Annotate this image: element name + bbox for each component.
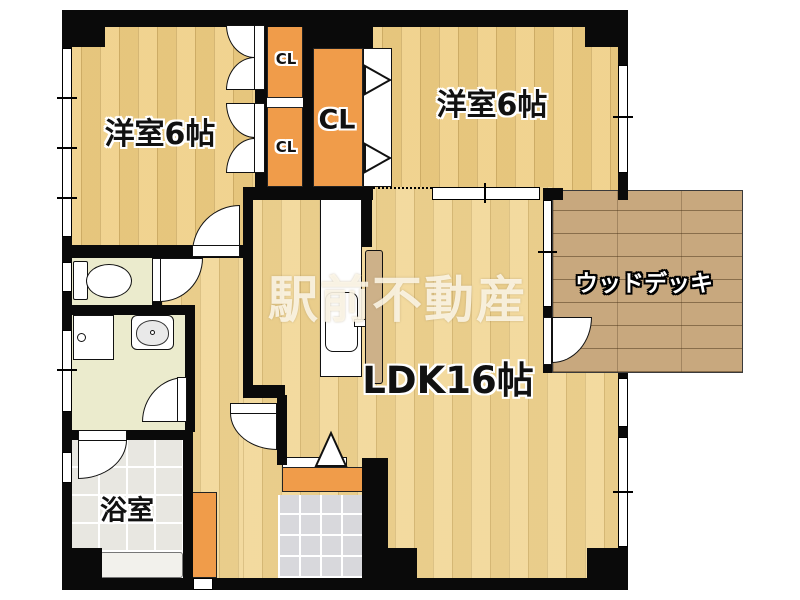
genkan-triangle-icon xyxy=(313,430,349,468)
window-left-long xyxy=(62,48,72,237)
bathtub xyxy=(100,552,183,578)
washbasin-drain-icon xyxy=(150,330,155,335)
sliding-opening-bedroomtr xyxy=(432,187,540,200)
window-washroom xyxy=(62,330,72,412)
wall-genkan-left xyxy=(277,395,287,465)
wall-kitchen-stub xyxy=(362,187,372,247)
door-deck-leaf xyxy=(543,317,552,365)
wall-corner-bl xyxy=(62,548,102,590)
window-bottom xyxy=(193,578,213,590)
wall-genkan-right xyxy=(362,458,388,578)
fold-door-triangles-icon xyxy=(362,48,393,188)
window-tick xyxy=(57,97,77,99)
wall-hall-ldk xyxy=(243,187,253,398)
window-ldk-right-1 xyxy=(618,378,628,427)
window-tick xyxy=(57,369,77,371)
label-wood-deck: ウッドデッキ xyxy=(575,264,713,298)
wall-bathroom-right xyxy=(183,430,193,578)
window-tick xyxy=(613,116,633,118)
toilet-bowl xyxy=(86,264,132,298)
window-bedroomtr-right xyxy=(618,65,628,173)
wall-corner-br xyxy=(587,548,628,590)
label-bedroom-tl: 洋室6帖 xyxy=(105,109,216,153)
shoe-cabinet xyxy=(282,467,363,492)
door-bedroomtl-leaf xyxy=(192,245,240,257)
wall-genkan-step xyxy=(388,548,417,578)
wall-toilet-washroom xyxy=(62,305,195,315)
window-bathroom xyxy=(62,452,72,483)
floorplan-canvas: 洋室6帖 洋室6帖 CL CL CL LDK16帖 浴室 ウッドデッキ 駅前不動… xyxy=(0,0,800,600)
label-ldk: LDK16帖 xyxy=(362,350,533,404)
wall-toilet-nub xyxy=(152,300,162,315)
window-toilet xyxy=(62,262,72,292)
window-tick xyxy=(57,197,77,199)
window-tick xyxy=(613,491,633,493)
watermark: 駅前不動産 xyxy=(268,260,528,332)
wall-corner-tr xyxy=(585,10,628,47)
label-bedroom-tr: 洋室6帖 xyxy=(437,80,548,124)
label-closet-large: CL xyxy=(318,105,355,136)
label-closet-small-bottom: CL xyxy=(276,138,297,156)
floor-genkan xyxy=(278,495,363,578)
label-closet-small-top: CL xyxy=(276,50,297,68)
side-cabinet xyxy=(192,492,217,578)
label-bathroom: 浴室 xyxy=(100,489,154,528)
wall-corner-tl xyxy=(62,10,105,47)
wall-below-closets xyxy=(243,187,373,200)
washing-machine-knob-icon xyxy=(77,333,86,342)
window-tick xyxy=(57,147,77,149)
sliding-opening-tick xyxy=(484,183,486,203)
door-washroom-leaf xyxy=(177,377,187,422)
window-tick xyxy=(538,251,557,253)
wall-above-large-closet xyxy=(303,10,373,48)
wall-bottom xyxy=(62,578,628,590)
wall-deck-stub xyxy=(543,188,563,200)
window-ldk-deckside xyxy=(543,200,552,307)
